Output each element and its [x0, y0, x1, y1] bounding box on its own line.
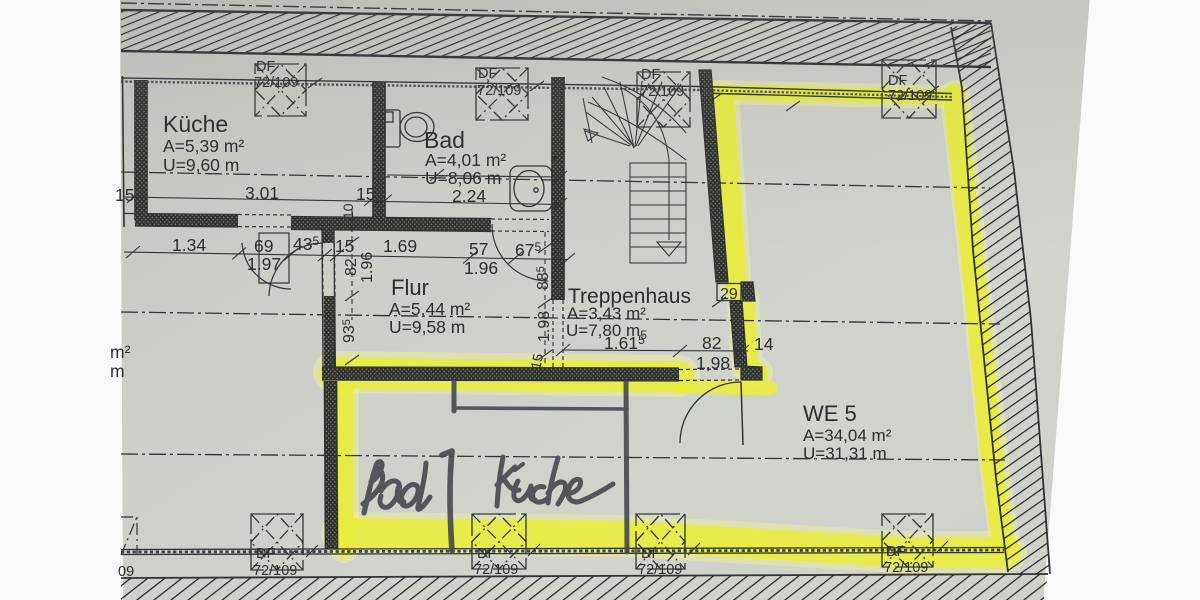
svg-text:A=34,04 m²: A=34,04 m² [803, 426, 892, 445]
svg-text:1.97: 1.97 [247, 254, 281, 274]
svg-text:WE 5: WE 5 [803, 401, 857, 426]
svg-text:DF: DF [886, 544, 905, 560]
svg-text:DF: DF [477, 546, 496, 562]
svg-text:09: 09 [118, 564, 134, 580]
svg-text:DF: DF [256, 546, 275, 562]
svg-text:Flur: Flur [391, 275, 429, 300]
svg-text:1.96: 1.96 [464, 258, 498, 278]
svg-text:72/109: 72/109 [638, 562, 682, 578]
svg-text:72/109: 72/109 [884, 560, 928, 576]
svg-text:DF: DF [641, 546, 660, 562]
svg-text:U=31,31 m: U=31,31 m [803, 444, 887, 463]
svg-text:1,98: 1,98 [696, 353, 730, 373]
svg-text:1.98: 1.98 [536, 311, 553, 342]
svg-text:A=5,44 m²: A=5,44 m² [389, 299, 470, 319]
svg-text:72/109: 72/109 [474, 562, 518, 578]
svg-text:m²: m² [110, 342, 131, 362]
svg-text:82: 82 [343, 258, 360, 276]
svg-text:U=9,58 m: U=9,58 m [389, 317, 465, 337]
svg-text:29: 29 [720, 286, 738, 303]
svg-text:m: m [110, 361, 125, 381]
svg-text:1.96: 1.96 [359, 252, 376, 283]
svg-text:72/109: 72/109 [253, 563, 297, 579]
svg-text:14: 14 [754, 334, 774, 354]
svg-text:82: 82 [702, 333, 721, 353]
